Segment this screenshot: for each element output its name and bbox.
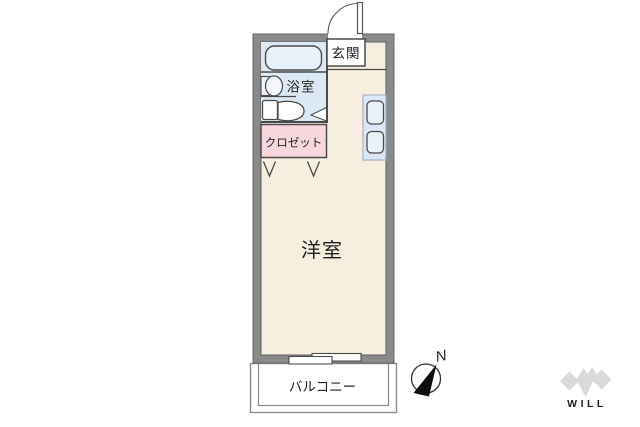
logo-diamond-left-icon <box>560 372 579 391</box>
entrance-door-leaf <box>358 3 363 34</box>
logo-text: WILL <box>567 398 607 410</box>
balcony-label: バルコニー <box>289 380 356 395</box>
washbasin-icon <box>266 76 283 96</box>
bathroom-label: 浴室 <box>287 79 316 95</box>
kitchen-stove <box>367 132 384 154</box>
toilet-tank <box>263 101 278 120</box>
floorplan-image: 玄関 浴室 クロゼット 洋室 バルコニー N WILL <box>0 0 640 427</box>
logo-w-mark-icon <box>577 367 597 397</box>
toilet-icon <box>278 101 304 120</box>
window-panel-left <box>289 357 332 365</box>
closet-label: クロゼット <box>265 137 323 150</box>
will-logo: WILL <box>560 367 612 410</box>
entrance-door-swing-icon <box>328 3 363 34</box>
compass-north-label: N <box>434 347 448 366</box>
genkan-label: 玄関 <box>332 45 361 61</box>
main-room-label: 洋室 <box>301 239 343 262</box>
kitchen-sink <box>367 101 384 124</box>
kitchen-counter-icon <box>363 95 386 160</box>
entrance-door-arc <box>328 4 358 34</box>
compass: N <box>412 347 449 396</box>
floorplan-svg: 玄関 浴室 クロゼット 洋室 バルコニー N WILL <box>0 0 640 427</box>
bathtub-icon <box>266 46 322 70</box>
